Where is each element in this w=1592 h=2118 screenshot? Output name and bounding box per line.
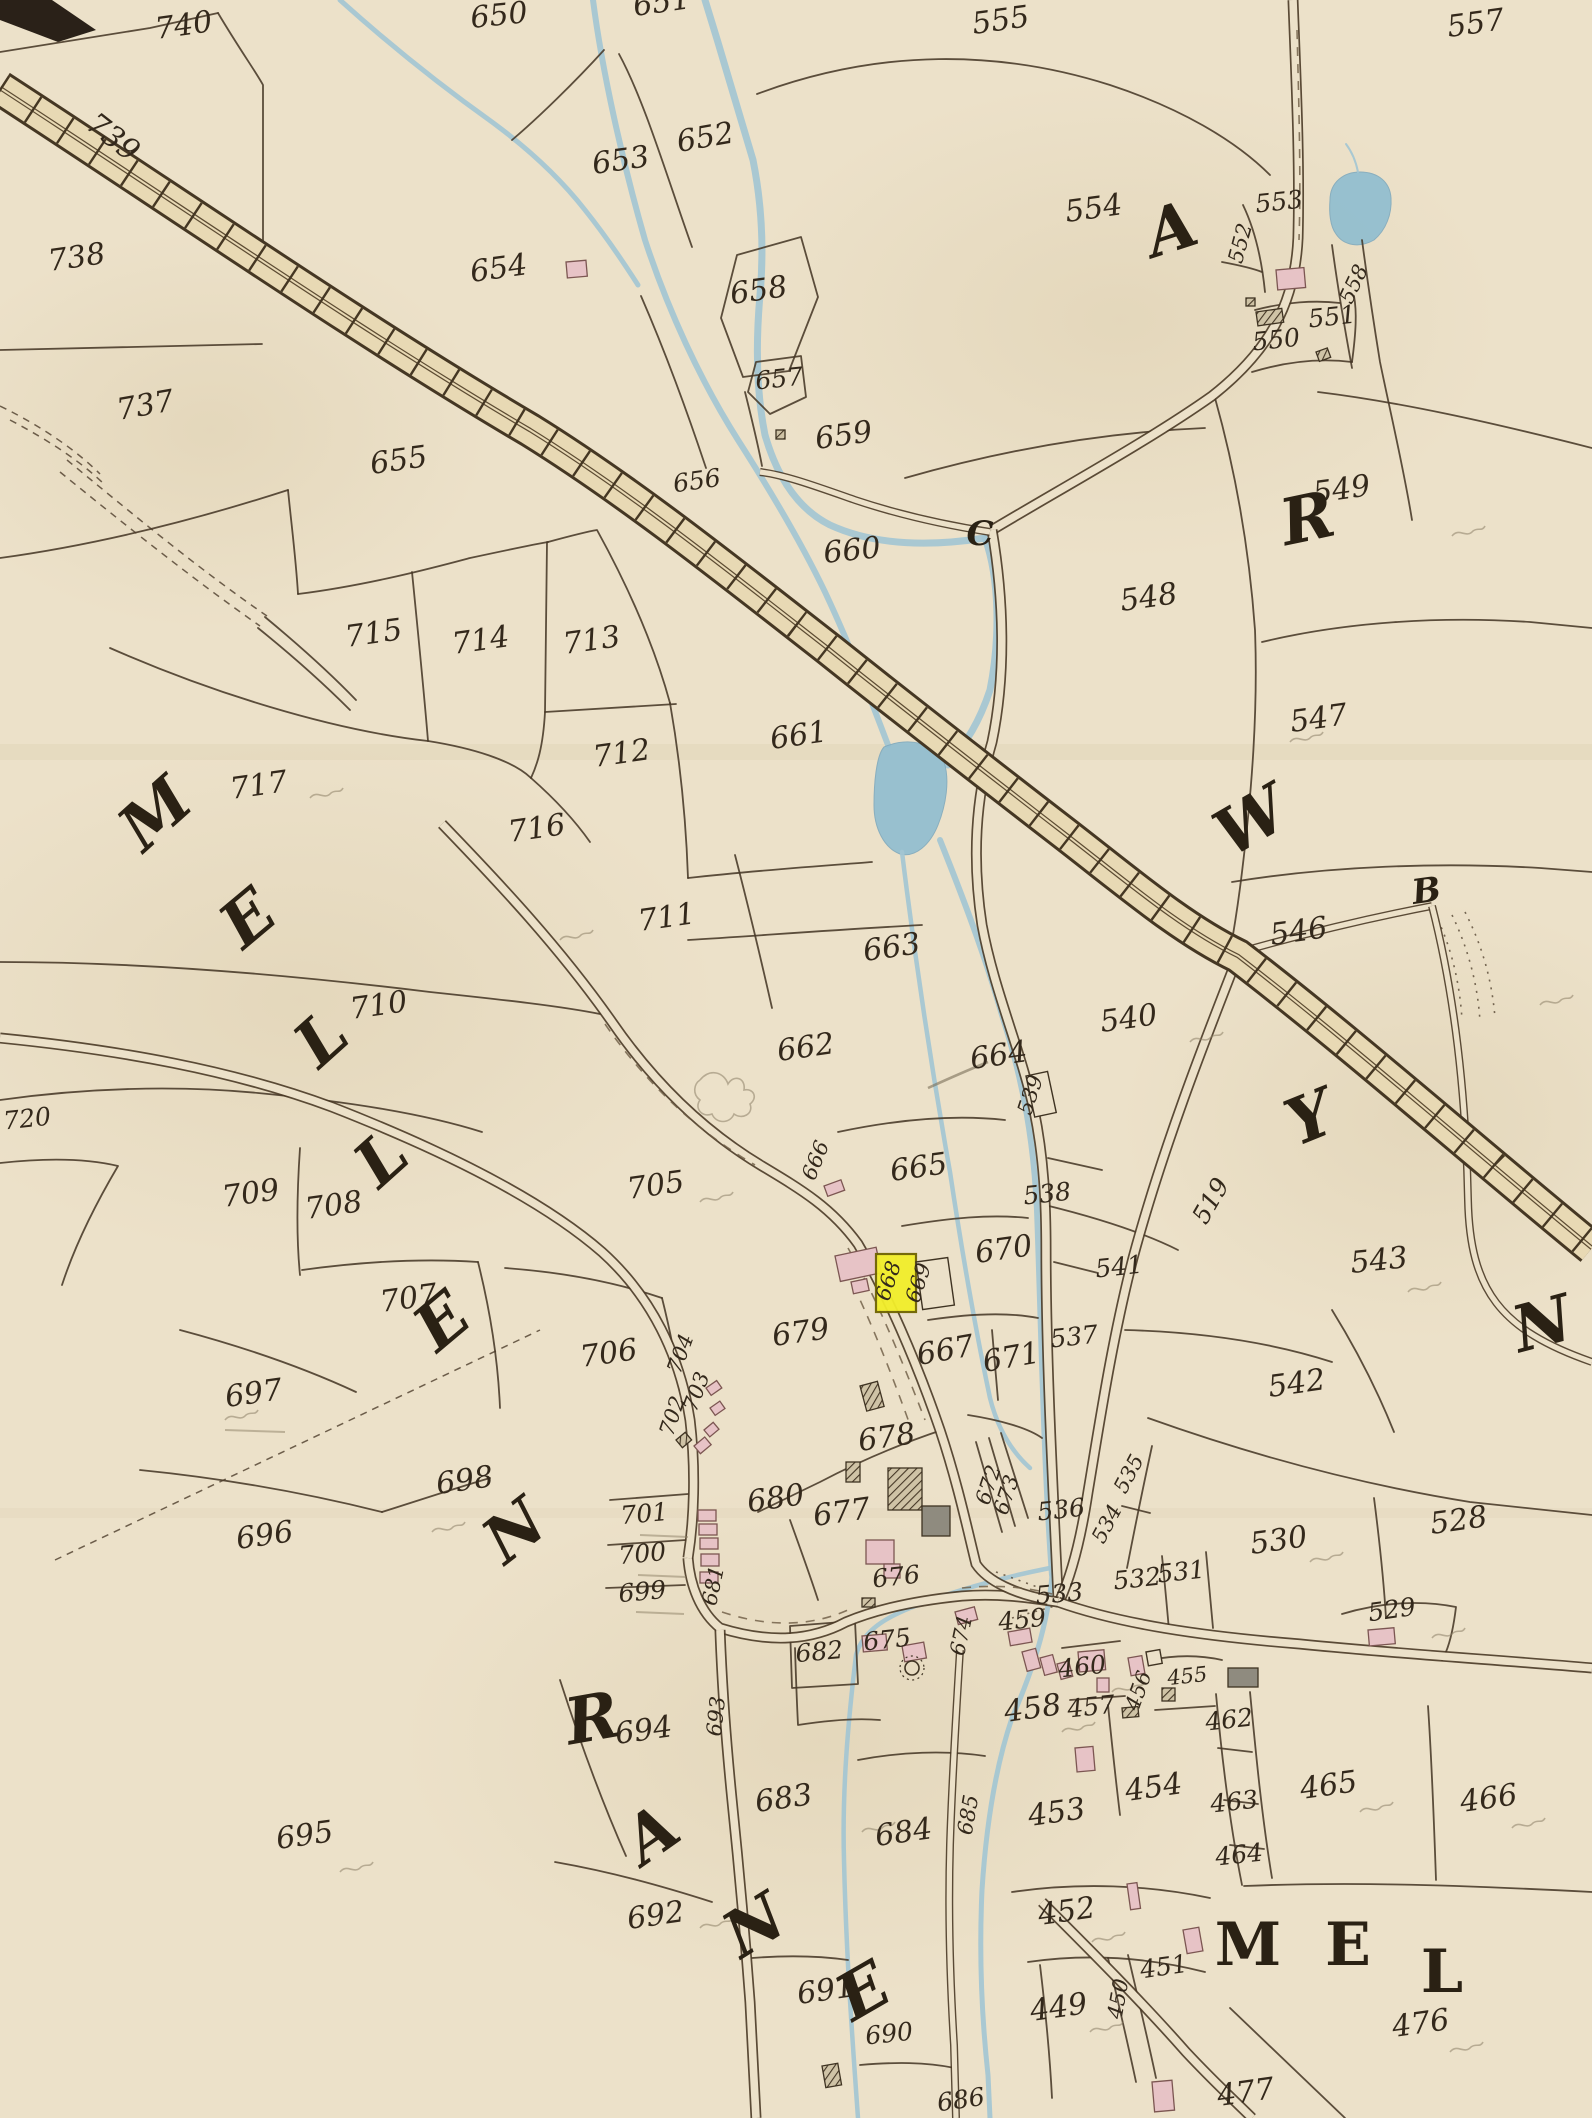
parcel-label-550: 550 (1251, 323, 1302, 357)
parcel-label-543: 543 (1349, 1240, 1410, 1281)
parcel-label-693: 693 (702, 1695, 730, 1737)
parcel-label-455: 455 (1165, 1662, 1208, 1690)
building-icon (698, 1510, 716, 1521)
parcel-label-701: 701 (619, 1497, 669, 1530)
parcel-label-657: 657 (754, 362, 805, 396)
parcel-label-553: 553 (1254, 185, 1304, 219)
parcel-label-463: 463 (1208, 1785, 1259, 1819)
building-outbuilding-icon (1256, 308, 1284, 325)
parcel-label-532: 532 (1112, 1562, 1162, 1596)
placename-letter-C: C (966, 514, 993, 554)
parcel-label-533: 533 (1034, 1577, 1084, 1610)
parcel-label-536: 536 (1036, 1493, 1087, 1527)
parcel-label-541: 541 (1094, 1250, 1144, 1284)
building-icon (1183, 1927, 1203, 1953)
placename-letter-M: M (1215, 1910, 1281, 1980)
parcel-label-675: 675 (862, 1623, 912, 1657)
parcel-label-464: 464 (1213, 1838, 1264, 1872)
placename-letter-E: E (1325, 1910, 1371, 1980)
building-icon (851, 1279, 869, 1294)
building-icon (1152, 2080, 1175, 2112)
parcel-label-676: 676 (871, 1560, 922, 1594)
cadastral-map-canvas: 7407397387376506516526536546556566576586… (0, 0, 1592, 2118)
parcel-label-720: 720 (2, 1102, 53, 1136)
building-icon (1368, 1628, 1395, 1646)
placename-letter-L: L (1421, 1937, 1463, 2007)
building-outbuilding-icon (922, 1506, 950, 1536)
building-outbuilding-icon (822, 2063, 842, 2087)
parcel-label-538: 538 (1022, 1177, 1072, 1211)
building-icon (1276, 268, 1306, 290)
placename-letter-B: B (1408, 869, 1443, 913)
building-icon (699, 1524, 717, 1535)
building-outbuilding-icon (776, 430, 785, 439)
parcel-label-462: 462 (1203, 1703, 1254, 1737)
building-icon (700, 1538, 718, 1549)
parcel-label-537: 537 (1049, 1320, 1100, 1354)
building-icon (566, 260, 587, 278)
building-outbuilding-icon (1246, 298, 1255, 306)
parcel-label-650: 650 (469, 0, 530, 36)
building-outbuilding-icon (846, 1462, 860, 1482)
parcel-label-700: 700 (617, 1537, 667, 1570)
parcel-label-699: 699 (617, 1575, 667, 1608)
building-outbuilding-icon (1228, 1668, 1258, 1687)
parcel-label-531: 531 (1156, 1555, 1206, 1589)
building-outbuilding-icon (1146, 1650, 1162, 1666)
building-outbuilding-icon (862, 1598, 875, 1607)
building-icon (701, 1554, 719, 1566)
building-icon (1075, 1746, 1095, 1771)
building-icon (866, 1540, 894, 1564)
parcel-label-660: 660 (822, 530, 883, 571)
building-outbuilding-icon (888, 1468, 922, 1510)
map-viewport[interactable]: 7407397387376506516526536546556566576586… (0, 0, 1592, 2118)
parcel-label-457: 457 (1065, 1690, 1117, 1724)
parcel-label-682: 682 (794, 1635, 844, 1668)
parcel-label-460: 460 (1056, 1650, 1108, 1684)
